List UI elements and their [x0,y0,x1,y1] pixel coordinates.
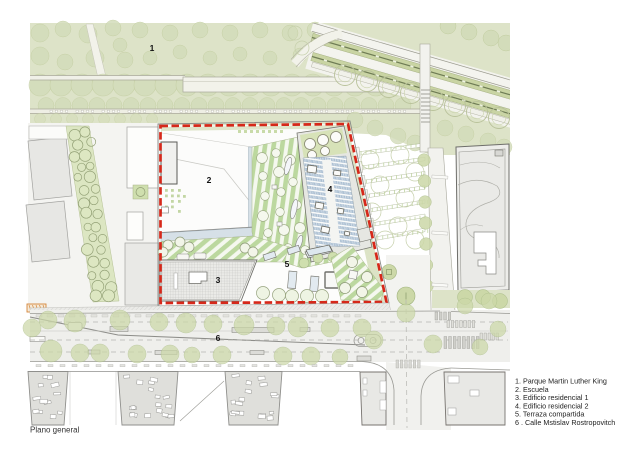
svg-text:2: 2 [207,175,212,185]
svg-text:1: 1 [150,43,155,53]
svg-text:Plano general: Plano general [30,426,80,435]
svg-text:4: 4 [328,184,333,194]
svg-text:6: 6 [216,333,221,343]
svg-text:3: 3 [216,275,221,285]
svg-text:5: 5 [285,259,290,269]
svg-text:6 . Calle Mstislav Rostropovit: 6 . Calle Mstislav Rostropovitch [515,418,615,427]
